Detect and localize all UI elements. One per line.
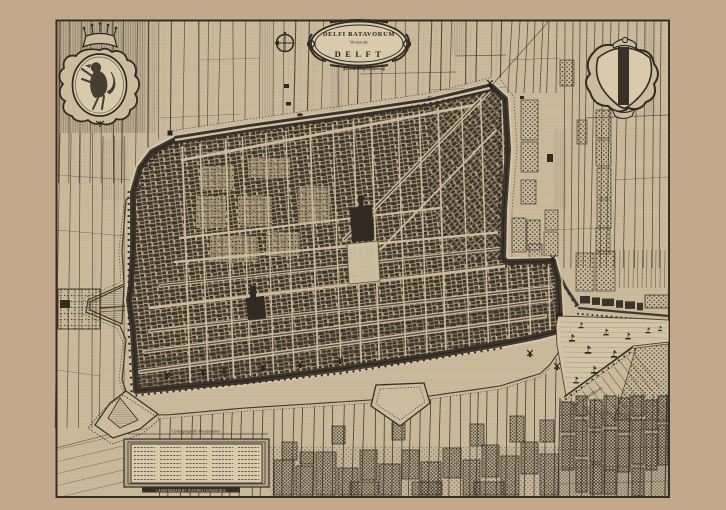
svg-text:DELFI BATAVORUM: DELFI BATAVORUM (323, 31, 395, 38)
svg-text:Vernacule: Vernacule (350, 40, 368, 45)
svg-text:Uytlegginge der Hooftstucken: Uytlegginge der Hooftstucken (172, 429, 220, 434)
svg-text:DELFT: DELFT (335, 49, 386, 59)
svg-text:t AMSTERDAM BY IOANNES IANSSON: t AMSTERDAM BY IOANNES IANSSONIUS (156, 489, 225, 493)
